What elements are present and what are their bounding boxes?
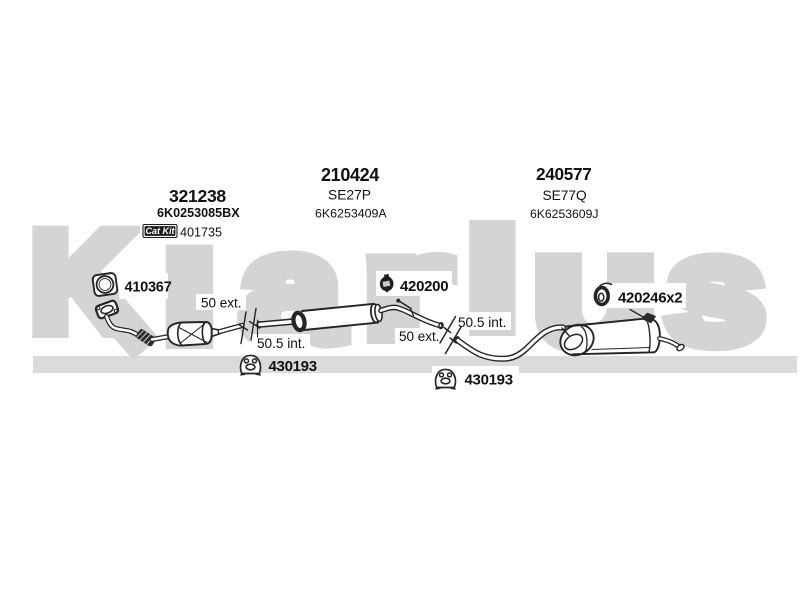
svg-text:430193: 430193 <box>269 358 317 375</box>
svg-text:Cat Kit: Cat Kit <box>146 226 176 236</box>
svg-text:420200: 420200 <box>400 278 448 295</box>
svg-text:420246x2: 420246x2 <box>618 290 682 307</box>
svg-text:6K6253609J: 6K6253609J <box>530 207 598 221</box>
svg-text:50.5 int.: 50.5 int. <box>257 336 305 351</box>
svg-text:401735: 401735 <box>180 226 222 240</box>
svg-text:6K0253085BX: 6K0253085BX <box>157 206 240 220</box>
svg-text:50.5 int.: 50.5 int. <box>458 315 506 330</box>
svg-text:430193: 430193 <box>465 372 513 389</box>
svg-text:50 ext.: 50 ext. <box>201 296 242 311</box>
svg-text:321238: 321238 <box>169 186 226 206</box>
svg-text:240577: 240577 <box>536 164 592 184</box>
svg-text:i: i <box>467 204 518 358</box>
svg-text:6K6253409A: 6K6253409A <box>315 207 387 221</box>
svg-text:SE27P: SE27P <box>328 188 371 203</box>
svg-text:210424: 210424 <box>321 165 379 185</box>
svg-text:410367: 410367 <box>125 280 172 296</box>
svg-text:50 ext.: 50 ext. <box>399 329 440 344</box>
svg-text:SE77Q: SE77Q <box>543 188 587 203</box>
